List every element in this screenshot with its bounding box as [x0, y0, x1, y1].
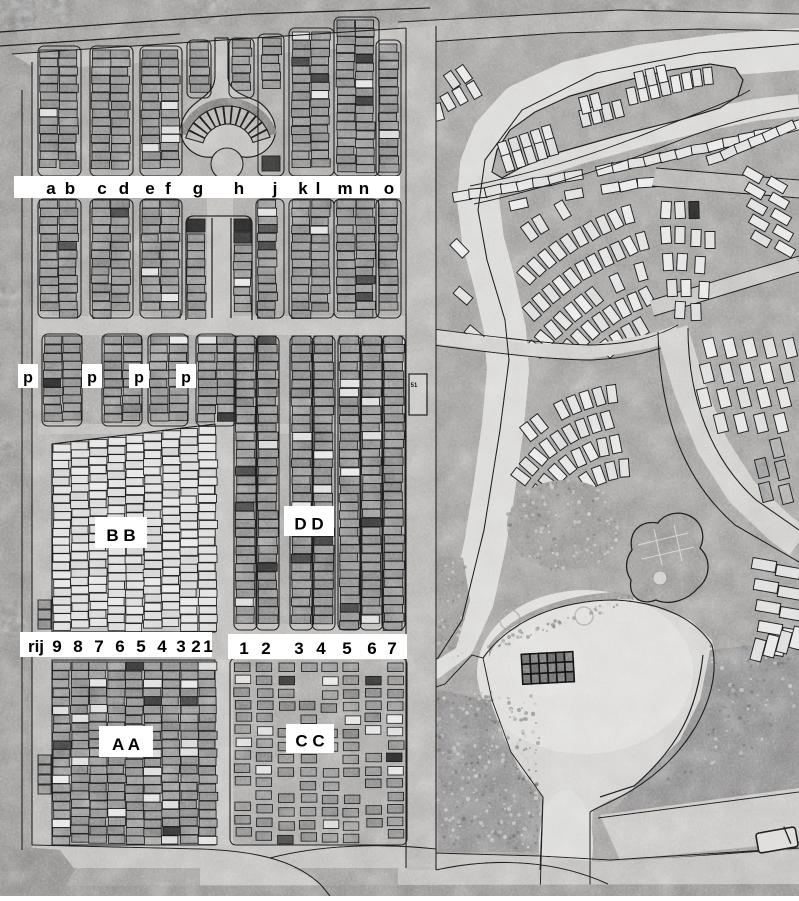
svg-text:g: g	[193, 179, 203, 198]
svg-text:D D: D D	[294, 514, 323, 533]
svg-text:6: 6	[367, 639, 376, 658]
svg-text:j: j	[272, 179, 278, 198]
svg-text:5: 5	[136, 637, 145, 656]
svg-text:8: 8	[73, 637, 82, 656]
svg-text:5: 5	[342, 639, 351, 658]
svg-text:p: p	[181, 370, 191, 387]
svg-text:d: d	[119, 179, 129, 198]
svg-text:c: c	[97, 179, 106, 198]
svg-text:6: 6	[115, 637, 124, 656]
svg-text:2: 2	[261, 639, 270, 658]
svg-text:f: f	[165, 179, 171, 198]
svg-text:b: b	[65, 179, 75, 198]
svg-text:1: 1	[239, 639, 248, 658]
svg-text:3: 3	[176, 637, 185, 656]
svg-text:h: h	[234, 179, 244, 198]
svg-text:l: l	[316, 179, 321, 198]
svg-text:2: 2	[191, 637, 200, 656]
svg-text:n: n	[359, 179, 369, 198]
svg-text:p: p	[23, 370, 33, 387]
svg-text:rij: rij	[28, 637, 44, 656]
svg-text:m: m	[337, 179, 352, 198]
svg-text:C C: C C	[295, 732, 324, 751]
svg-text:7: 7	[387, 639, 396, 658]
svg-text:a: a	[46, 179, 56, 198]
svg-text:1: 1	[203, 637, 212, 656]
svg-text:7: 7	[94, 637, 103, 656]
svg-text:k: k	[298, 179, 308, 198]
svg-text:p: p	[134, 370, 144, 387]
svg-text:B B: B B	[106, 526, 135, 545]
svg-text:3: 3	[294, 639, 303, 658]
svg-text:e: e	[145, 179, 154, 198]
svg-text:4: 4	[316, 639, 326, 658]
svg-text:A A: A A	[112, 735, 140, 754]
svg-text:9: 9	[52, 637, 61, 656]
svg-text:o: o	[384, 179, 394, 198]
svg-text:4: 4	[157, 637, 167, 656]
svg-text:p: p	[87, 370, 97, 387]
